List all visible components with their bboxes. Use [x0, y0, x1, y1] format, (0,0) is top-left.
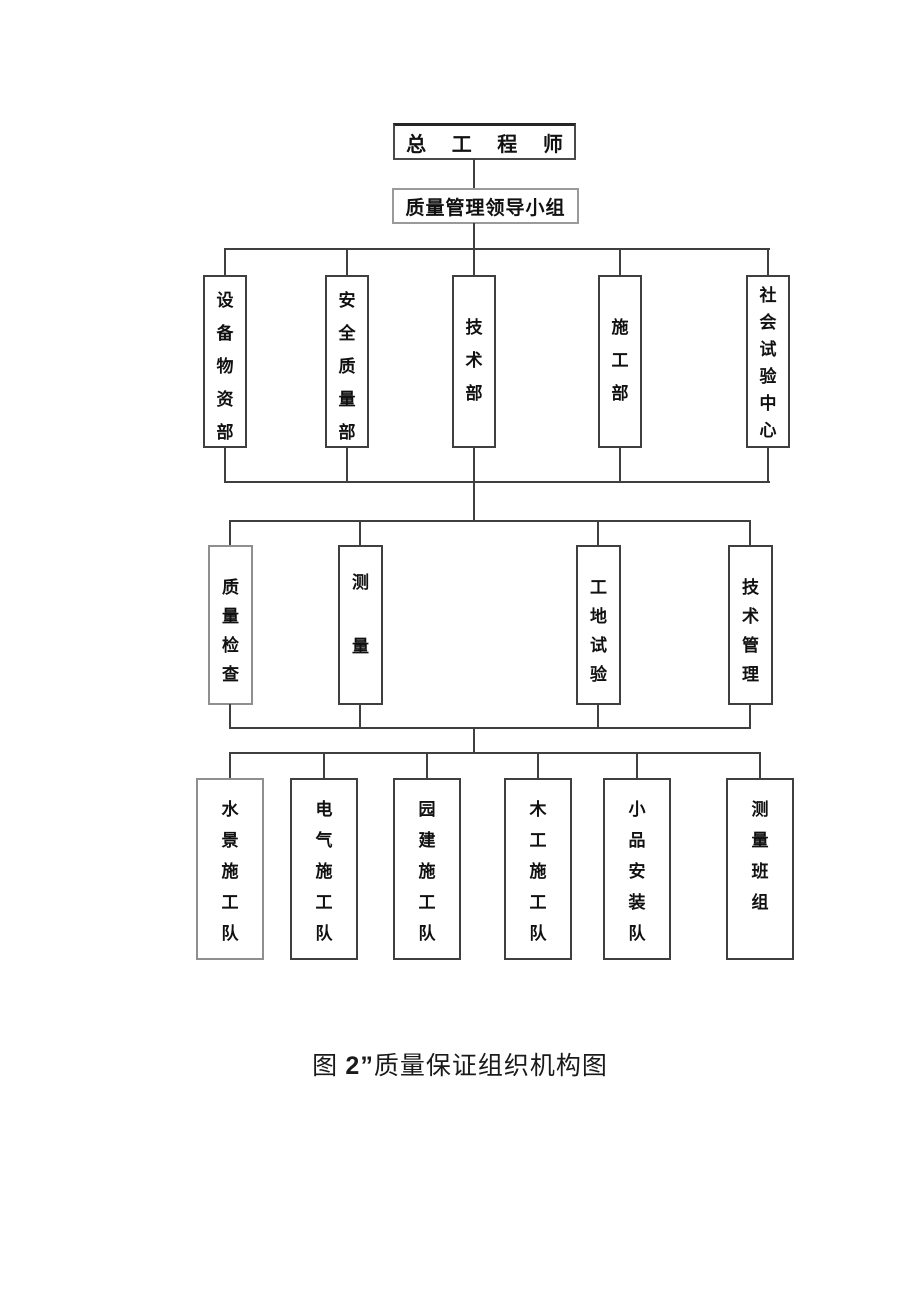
node-dept-social-testing-center: 社会试验中心 — [746, 275, 790, 448]
node-team-survey-crew: 测量班组 — [726, 778, 794, 960]
connector-stub-dept-5-down — [767, 448, 769, 482]
node-dept-construction: 施工部 — [598, 275, 642, 448]
connector-stub-func-3 — [597, 522, 599, 546]
node-team-ornament-installation: 小品安装队 — [603, 778, 671, 960]
connector-root-leadership — [473, 159, 475, 189]
connector-bus-teams — [473, 729, 475, 753]
connector-stub-func-3-down — [597, 704, 599, 728]
node-quality-leadership-group-label: 质量管理领导小组 — [405, 193, 565, 220]
connector-stub-dept-1-down — [224, 448, 226, 482]
node-dept-technical: 技术部 — [452, 275, 496, 448]
connector-departments-bus — [224, 248, 770, 250]
node-dept-technical-label: 技术部 — [465, 277, 483, 446]
connector-stub-dept-5 — [767, 250, 769, 277]
connector-stub-func-1-down — [229, 704, 231, 728]
node-chief-engineer-label: 总 工 程 师 — [396, 128, 573, 157]
node-team-electrical: 电气施工队 — [290, 778, 358, 960]
connector-functions-bus — [229, 520, 751, 522]
node-func-quality-inspection: 质量检查 — [208, 545, 253, 705]
connector-stub-team-6 — [759, 754, 761, 779]
node-dept-construction-label: 施工部 — [611, 277, 629, 446]
node-dept-safety-quality: 安全质量部 — [325, 275, 369, 448]
connector-functions-bottom-bus — [229, 727, 751, 729]
node-func-measurement: 测量 — [338, 545, 383, 705]
figure-caption: 图 2”质量保证组织机构图 — [0, 1046, 920, 1082]
connector-stub-func-2-down — [359, 704, 361, 728]
node-func-technical-management-label: 技术管理 — [742, 547, 760, 703]
connector-stub-dept-2 — [346, 250, 348, 277]
node-func-measurement-label: 测量 — [352, 547, 370, 703]
node-team-survey-crew-label: 测量班组 — [751, 780, 769, 958]
connector-stub-dept-2-down — [346, 448, 348, 482]
node-func-site-testing-label: 工地试验 — [590, 547, 608, 703]
node-func-site-testing: 工地试验 — [576, 545, 621, 705]
connector-stub-func-2 — [359, 522, 361, 546]
node-func-quality-inspection-label: 质量检查 — [222, 547, 240, 703]
node-team-water-feature: 水景施工队 — [196, 778, 264, 960]
connector-stub-dept-3-down — [473, 448, 475, 482]
figure-caption-prefix: 图 — [312, 1053, 345, 1080]
figure-caption-number: 2” — [345, 1052, 373, 1080]
connector-leadership-bus — [473, 223, 475, 250]
node-team-ornament-installation-label: 小品安装队 — [628, 780, 646, 958]
connector-departments-bottom-bus — [224, 481, 770, 483]
connector-stub-dept-4 — [619, 250, 621, 277]
connector-stub-team-2 — [323, 754, 325, 779]
document-page: 总 工 程 师 质量管理领导小组 设备物资部 安全质量部 技术部 施工部 社会试… — [0, 0, 920, 1301]
node-team-electrical-label: 电气施工队 — [315, 780, 333, 958]
node-dept-social-testing-center-label: 社会试验中心 — [759, 277, 777, 446]
connector-stub-func-1 — [229, 522, 231, 546]
connector-stub-dept-1 — [224, 250, 226, 277]
node-dept-equipment-materials-label: 设备物资部 — [216, 277, 234, 446]
connector-teams-bus — [229, 752, 761, 754]
node-dept-safety-quality-label: 安全质量部 — [338, 277, 356, 446]
figure-caption-title: 质量保证组织机构图 — [374, 1053, 608, 1080]
node-chief-engineer: 总 工 程 师 — [393, 123, 576, 160]
node-team-garden-construction: 园建施工队 — [393, 778, 461, 960]
connector-stub-func-4-down — [749, 704, 751, 728]
connector-stub-team-3 — [426, 754, 428, 779]
connector-stub-func-4 — [749, 522, 751, 546]
node-quality-leadership-group: 质量管理领导小组 — [392, 188, 579, 224]
node-func-technical-management: 技术管理 — [728, 545, 773, 705]
connector-bus-functions — [473, 483, 475, 521]
connector-stub-team-5 — [636, 754, 638, 779]
node-dept-equipment-materials: 设备物资部 — [203, 275, 247, 448]
connector-stub-dept-3 — [473, 250, 475, 277]
node-team-water-feature-label: 水景施工队 — [221, 780, 239, 958]
connector-stub-team-1 — [229, 754, 231, 779]
node-team-garden-construction-label: 园建施工队 — [418, 780, 436, 958]
node-team-carpentry-label: 木工施工队 — [529, 780, 547, 958]
connector-stub-team-4 — [537, 754, 539, 779]
node-team-carpentry: 木工施工队 — [504, 778, 572, 960]
connector-stub-dept-4-down — [619, 448, 621, 482]
